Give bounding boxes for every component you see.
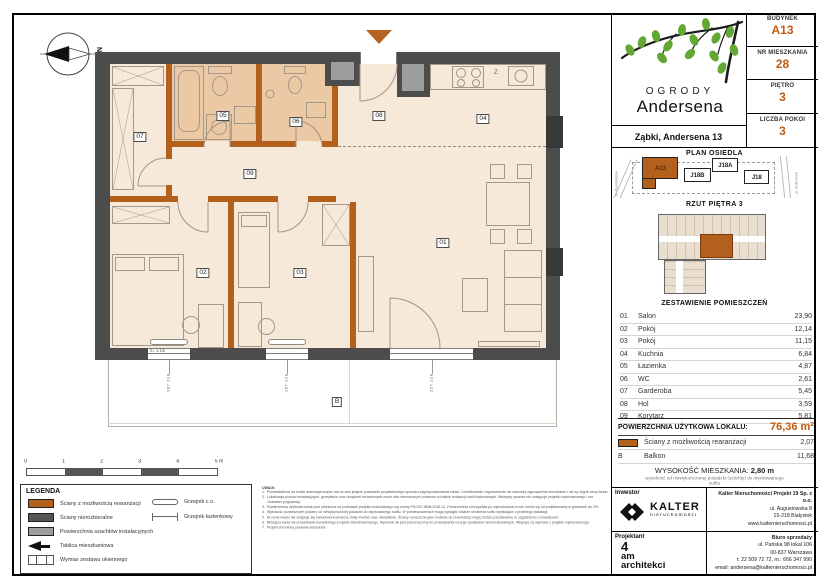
floor-overview-title: RZUT PIĘTRA 3 xyxy=(611,201,818,208)
legend-item-arrow: Tablica mieszkaniowa xyxy=(28,541,118,551)
radiator xyxy=(268,339,306,345)
walls-row-value: 2,07 xyxy=(800,439,814,446)
sofa-cushion-line xyxy=(504,277,542,278)
floor-overview-corridor xyxy=(676,261,683,293)
scale-tick-0: 0 xyxy=(24,459,27,464)
scale-segment-4 xyxy=(179,469,217,475)
kitchen-sink xyxy=(508,66,534,86)
rooms-table-row-06: 06WC2,61 xyxy=(620,374,812,387)
room-label-08: 08 xyxy=(372,111,385,121)
walls-area-row: Ściany z możliwością rearanżacji 2,07 xyxy=(618,436,814,450)
scale-segment-2 xyxy=(103,469,141,475)
designer-logo: 4amarchitekci xyxy=(621,541,665,570)
bookshelf xyxy=(358,256,374,332)
toilet-bowl xyxy=(212,76,228,96)
room-label-02: 02 xyxy=(196,268,209,278)
logo-tree-graphic xyxy=(616,16,744,84)
total-area-value: 76,36 m² xyxy=(770,421,814,433)
window-height-note: h= 1,1m xyxy=(150,349,165,353)
legend-item-radiator-co: Grzejnik c.o. xyxy=(152,499,217,505)
toilet xyxy=(208,66,232,74)
sofa-cushion-line xyxy=(504,304,542,305)
balcony-row-label: Balkon xyxy=(644,453,797,460)
chair xyxy=(490,229,505,244)
highlighted-apartment xyxy=(700,234,733,258)
room-label-03: 03 xyxy=(293,268,306,278)
sales-line-2: t: 22 509 72 72, m.: 666 347 990 xyxy=(708,557,812,565)
apartment-card-sheet: Z N xyxy=(0,0,830,587)
note-item-1: 1. Przedstawiona na rzucie aranżacja wnę… xyxy=(262,490,608,495)
room-label-06: 06 xyxy=(289,117,302,127)
desk xyxy=(198,304,224,348)
rooms-table-row-05: 05Łazienka4,87 xyxy=(620,361,812,374)
company-line-0: ul. Augustowska 8 xyxy=(708,505,812,513)
rooms-table-row-01: 01Salon23,90 xyxy=(620,311,812,324)
toilet xyxy=(284,66,306,74)
note-item-7: 7. Projekt chroniony prawami autorskimi. xyxy=(262,526,608,531)
site-building-J18A: J18A xyxy=(712,158,738,172)
pillow xyxy=(241,215,267,227)
apartment-height: WYSOKOŚĆ MIESZKANIA: 2,80 m xyxy=(611,466,818,475)
investor-label: Inwestor xyxy=(615,490,640,496)
balcony-row-value: 11,68 xyxy=(797,453,814,460)
info-row-0: BUDYNEKA13 xyxy=(747,13,818,47)
dim-leader xyxy=(287,360,288,374)
rooms-table-row-08: 08Hol3,59 xyxy=(620,399,812,412)
legend-item-window: Wymiar zestawu okiennego xyxy=(28,555,133,565)
info-row-2: PIĘTRO3 xyxy=(747,80,818,114)
sink xyxy=(234,106,256,124)
rooms-table-row-02: 02Pokój12,14 xyxy=(620,324,812,337)
legend-title: LEGENDA xyxy=(26,488,60,495)
scale-segment-1 xyxy=(65,469,103,475)
height-note: wysokość od niewykończonej posadzki (szl… xyxy=(640,476,789,486)
street-label-left: ul. Powstańców xyxy=(615,171,619,196)
note-item-6: 6. Niniejsza karta nie przedstawia kompl… xyxy=(262,521,608,526)
site-building-notch xyxy=(642,178,656,189)
window-dim-0: 167 218 xyxy=(167,374,171,392)
wardrobe xyxy=(112,206,170,224)
pillow xyxy=(149,257,179,271)
orange-wall-swatch xyxy=(618,439,638,447)
rooms-table: 01Salon23,9002Pokój12,1403Pokój11,1504Ku… xyxy=(620,311,812,424)
note-item-4: 4. Wysokość pomieszczeń podano od niewyk… xyxy=(262,510,608,515)
room-label-07: 07 xyxy=(133,132,146,142)
kalter-logo-text: KALTER nieruchomości xyxy=(650,502,709,519)
total-area-label: POWIERZCHNIA UŻYTKOWA LOKALU: xyxy=(618,424,770,431)
compass-icon xyxy=(36,26,100,82)
coffee-table xyxy=(462,278,488,312)
chair xyxy=(258,318,275,335)
notes-block: UWAGI: 1. Przedstawiona na rzucie aranża… xyxy=(262,486,608,548)
legend-item-radiator-bath: Grzejnik łazienkowy xyxy=(152,513,237,521)
wardrobe xyxy=(112,66,164,86)
scale-segment-0 xyxy=(27,469,65,475)
wardrobe xyxy=(322,204,350,246)
street-label-right: ul. Andersena xyxy=(795,172,799,194)
sink xyxy=(306,102,326,118)
floor-overview-wing xyxy=(664,260,706,294)
scale-tick-2: 2 xyxy=(100,459,103,464)
radiator xyxy=(150,339,188,345)
dim-leader xyxy=(432,360,433,374)
info-row-3: LICZBA POKOI3 xyxy=(747,114,818,148)
note-item-5: 5. W cenie lokalu nie znajduje się zabud… xyxy=(262,516,608,521)
rooms-table-row-07: 07Garderoba5,45 xyxy=(620,386,812,399)
note-item-2: 2. Lokalizacja pionów instalacyjnych, gr… xyxy=(262,496,608,505)
dim-leader xyxy=(169,360,170,374)
legend-item-swatch-gray: Powierzchnia szachtów instalacyjnych xyxy=(28,527,161,536)
walls-row-label: Ściany z możliwością rearanżacji xyxy=(644,439,800,446)
legend-item-swatch-dark: Ściany nierozbieralne xyxy=(28,513,117,522)
title-block-divider xyxy=(611,531,818,532)
room-label-09: 09 xyxy=(243,169,256,179)
info-row-1: NR MIESZKANIA28 xyxy=(747,47,818,81)
company-line-1: 15-218 Białystok xyxy=(708,513,812,521)
scale-bar-segments xyxy=(26,468,218,476)
balcony-area-row: B Balkon 11,68 xyxy=(618,450,814,464)
chair xyxy=(517,164,532,179)
room-label-05: 05 xyxy=(216,111,229,121)
site-plan-title: PLAN OSIEDLA xyxy=(611,150,818,157)
site-building-J18B: J18B xyxy=(684,168,711,182)
divider xyxy=(611,147,818,148)
room-label-01: 01 xyxy=(436,238,449,248)
wardrobe xyxy=(112,88,134,190)
sales-line-3: email: andersena@kalternieruchomosci.pl xyxy=(708,564,812,572)
balcony-row-no: B xyxy=(618,453,644,460)
dining-table xyxy=(486,182,530,226)
north-label: N xyxy=(95,47,102,52)
site-building-A13: A13 xyxy=(642,157,678,179)
company-line-2: www.kalternieruchomosci.pl xyxy=(708,520,812,528)
apartment-info-column: BUDYNEKA13NR MIESZKANIA28PIĘTRO3LICZBA P… xyxy=(746,13,818,147)
room-label-04: 04 xyxy=(476,114,489,124)
site-building-J18: J18 xyxy=(744,170,769,184)
designer-label: Projektant xyxy=(615,534,644,540)
note-item-3: 3. Powierzchnia użytkowa lokalu jest okr… xyxy=(262,505,608,510)
sofa xyxy=(504,250,542,332)
scale-segment-3 xyxy=(141,469,179,475)
rooms-table-row-04: 04Kuchnia6,84 xyxy=(620,349,812,362)
notes-title: UWAGI: xyxy=(262,486,608,490)
pillow xyxy=(115,257,145,271)
floor-plan: Z N xyxy=(0,0,612,480)
sales-line-1: 00-837 Warszawa xyxy=(708,549,812,557)
kalter-logo-icon xyxy=(620,500,644,524)
toilet-bowl xyxy=(288,76,302,94)
scale-tick-5: 5 m xyxy=(215,459,224,464)
balcony-label: B xyxy=(332,397,342,407)
sales-office-address: Biuro sprzedaży ul. Pańska 98 lokal 1060… xyxy=(708,534,812,572)
legend-item-swatch-orange: Ściany z możliwością rearanżacji xyxy=(28,499,148,508)
window-dim-1: 167 218 xyxy=(285,374,289,392)
logo-word-ogrody: OGRODY xyxy=(616,86,744,97)
company-address: Kalter Nieruchomości Projekt 19 Sp. z o.… xyxy=(708,490,812,528)
rooms-table-title: ZESTAWIENIE POMIESZCZEŃ xyxy=(611,300,818,307)
scale-tick-4: 4 xyxy=(176,459,179,464)
scale-tick-1: 1 xyxy=(62,459,65,464)
tv-bench xyxy=(478,341,540,347)
rooms-table-row-03: 03Pokój11,15 xyxy=(620,336,812,349)
entrance-arrow xyxy=(366,30,392,44)
washing-machine-drum xyxy=(211,119,227,135)
logo-word-andersena: Andersena xyxy=(616,97,744,117)
scale-tick-3: 3 xyxy=(138,459,141,464)
chair xyxy=(182,316,200,334)
window-dim-2: 227 218 xyxy=(430,374,434,392)
total-area-row: POWIERZCHNIA UŻYTKOWA LOKALU: 76,36 m² xyxy=(618,418,814,436)
designer-line-2: architekci xyxy=(621,561,665,570)
bathtub-inner xyxy=(178,70,200,132)
chair xyxy=(490,164,505,179)
sales-line-0: ul. Pańska 98 lokal 106 xyxy=(708,542,812,550)
chair xyxy=(517,229,532,244)
project-address: Ząbki, Andersena 13 xyxy=(611,125,746,148)
sink-label: Z xyxy=(494,70,498,76)
cooktop xyxy=(452,66,484,88)
